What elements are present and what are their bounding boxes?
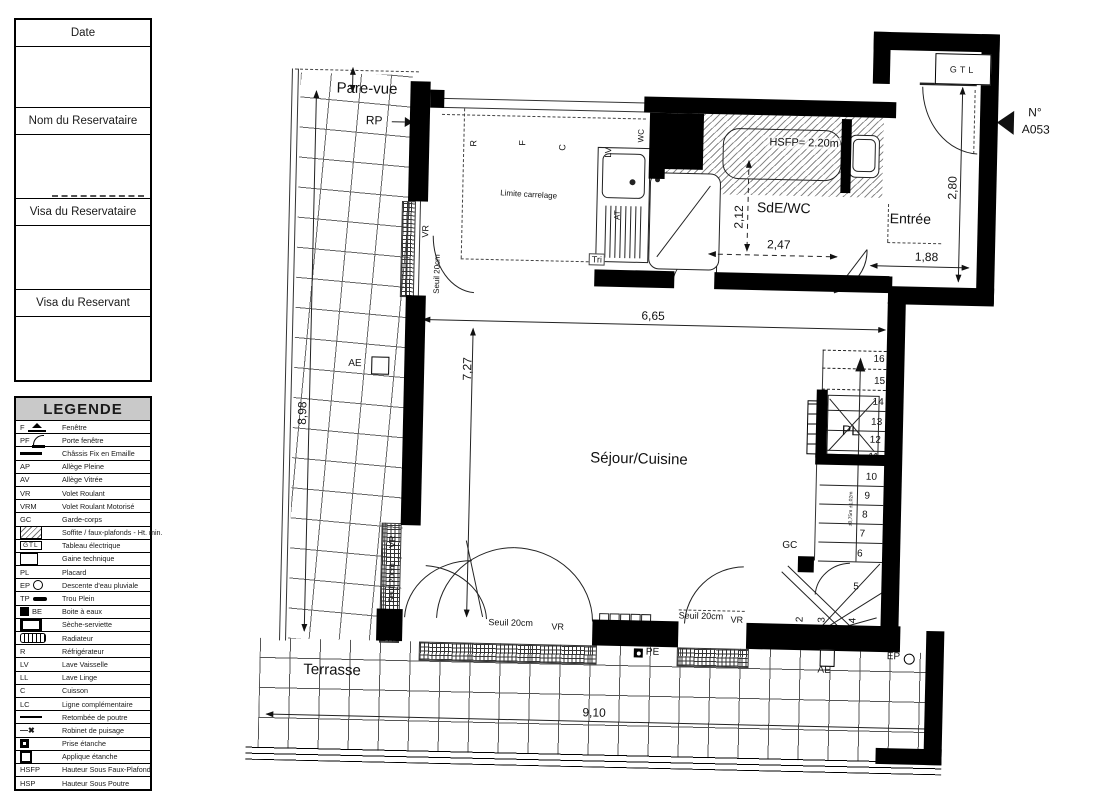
sink-unit: [596, 147, 651, 262]
dim-line-188: [871, 266, 969, 268]
wall: [408, 81, 431, 201]
floor-plan-page: Date Nom du Reservataire Visa du Reserva…: [0, 0, 1116, 800]
wall: [592, 619, 679, 647]
stair-note: ±0,75m ±1,02m: [848, 492, 855, 527]
seuil-label-left-bottom: Seuil 20cm: [387, 563, 397, 603]
at-label: AT: [613, 210, 622, 220]
dim-188: 1,88: [915, 250, 939, 265]
wall: [746, 623, 901, 652]
dim-212: 2,12: [731, 205, 746, 229]
dim-280: 2,80: [945, 176, 960, 200]
wall: [873, 32, 891, 84]
stair-step-number: 3: [817, 617, 828, 623]
wall: [376, 609, 403, 642]
dim-247: 2,47: [767, 237, 791, 252]
wc-duct: [659, 113, 704, 170]
vr-label-left-top: VR: [420, 225, 430, 238]
room-label-sejour: Séjour/Cuisine: [590, 449, 688, 468]
guardrail-post: [798, 556, 814, 572]
stair-step-number: 15: [874, 376, 885, 387]
unit-pointer-triangle: [997, 110, 1015, 134]
gtl-electrical-panel: GTL: [935, 53, 992, 85]
stair-step-number: 16: [873, 354, 884, 365]
stair-step-number: 6: [857, 548, 863, 559]
stair-direction-arrow: [855, 357, 865, 371]
stair-step-number: 14: [872, 397, 883, 408]
dim-line-247: [709, 254, 837, 257]
tri-chip: Tri: [589, 253, 605, 265]
appliance-lv-label: LV: [603, 147, 613, 158]
appliance-r-label: R: [468, 140, 478, 147]
seuil-label-french-door: Seuil 20cm: [488, 617, 533, 628]
french-door-arc-right: [513, 548, 595, 622]
vr-label-french-door: VR: [551, 622, 564, 632]
ae-label-left: AE: [348, 358, 362, 369]
wall: [815, 389, 828, 457]
rp-label: RP: [366, 113, 383, 127]
dim-665: 6,65: [641, 308, 665, 323]
stair-winder-arc: [815, 562, 850, 595]
wall: [430, 90, 444, 108]
room-label-placard: PL: [842, 422, 859, 438]
dim-727: 7,27: [460, 357, 475, 381]
vr-label-left-bottom: VR: [387, 535, 397, 548]
hsfp-label: HSFP= 2.20m: [767, 136, 841, 150]
dim-line-212: [747, 161, 749, 251]
tri-label: Tri: [592, 254, 602, 264]
room-label-entree: Entrée: [890, 210, 932, 227]
gtl-label: GTL: [950, 64, 977, 75]
wall: [875, 748, 941, 765]
stair-step-number: 12: [870, 435, 881, 446]
stair-step-number: 10: [866, 472, 877, 483]
unit-prefix: N°: [1028, 105, 1042, 119]
plan-linework: [0, 0, 1116, 800]
room-label-terrasse: Terrasse: [303, 661, 361, 679]
dim-898: 8,98: [295, 401, 310, 425]
stair-step-number: 8: [862, 510, 868, 521]
wall: [840, 119, 852, 193]
stair-step-number: 7: [859, 528, 865, 539]
stair-step-number: 9: [864, 491, 870, 502]
seuil-label-right-door: Seuil 20cm: [679, 610, 724, 621]
wall: [923, 631, 944, 765]
corner-door-arc-2: [425, 566, 488, 619]
stair-step-number: 2: [795, 616, 806, 622]
ep-label: EP: [887, 651, 901, 662]
corner-door-arc-1: [405, 559, 472, 618]
ae-symbol-left: [371, 356, 389, 374]
stair-step-number: 13: [871, 417, 882, 428]
vr-label-right-door: VR: [730, 615, 743, 625]
pare-vue-label: Pare-vue: [336, 79, 397, 97]
appliance-c-label: C: [557, 144, 567, 151]
dim-910: 9,10: [582, 705, 606, 720]
wall: [594, 269, 674, 288]
room-label-sde: SdE/WC: [757, 199, 811, 216]
wc-label: WC: [636, 129, 645, 143]
stair-step-number: 5: [853, 581, 859, 592]
wall: [815, 453, 892, 466]
entry-door-arc: [921, 87, 978, 154]
ae-label-terrace: AE: [817, 665, 831, 676]
seuil-label-left-top: Seuil 20cm: [432, 254, 442, 294]
appliance-f-label: F: [517, 140, 527, 146]
sink-drain-dot: [630, 180, 635, 185]
unit-code: A053: [1022, 122, 1050, 137]
floor-plan: GTL Tri Pare-vue RP VR Seuil 20cm WC R F…: [0, 0, 1116, 800]
pe-label: PE: [646, 647, 660, 658]
stair-step-number: 4: [848, 618, 859, 624]
dim-line-898: [304, 91, 316, 631]
pe-symbol: [634, 648, 643, 657]
gc-label: GC: [782, 540, 797, 551]
